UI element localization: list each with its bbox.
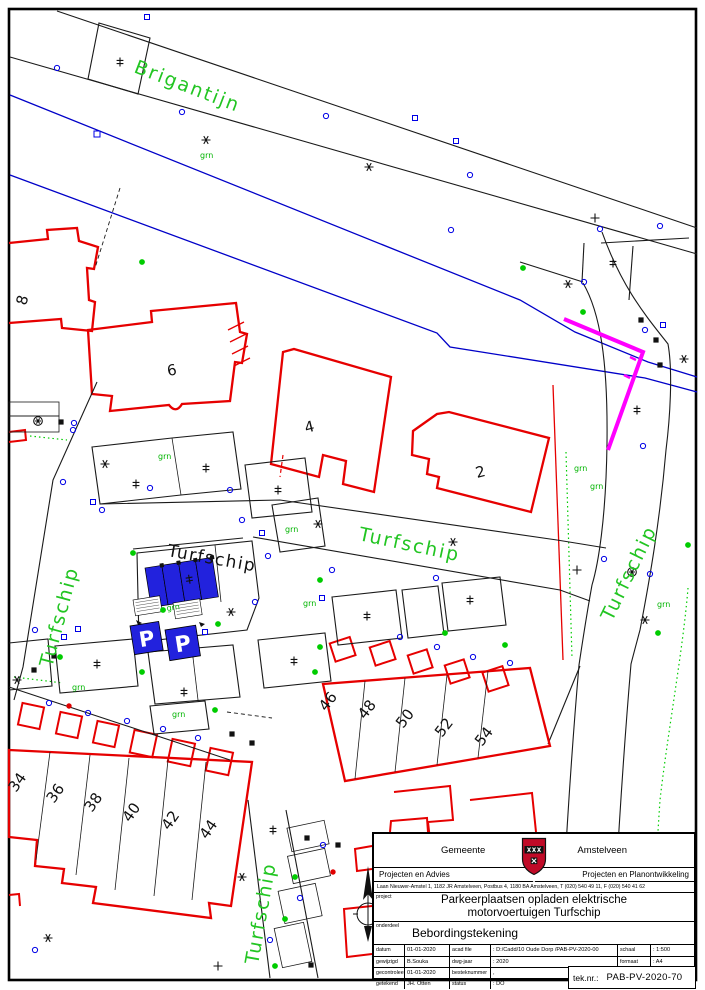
svg-text:grn: grn xyxy=(200,151,213,160)
drawing-page: P P xyxy=(0,0,705,990)
title-block-header: Gemeente Amstelveen xyxy=(374,834,694,867)
house-number: 54 xyxy=(471,723,497,749)
map-symbols xyxy=(13,15,691,971)
magenta-marking xyxy=(564,319,643,450)
dwgjaar-label: dwg-jaar xyxy=(449,956,490,967)
svg-text:grn: grn xyxy=(590,482,603,491)
house-number: 36 xyxy=(43,780,69,806)
project-title-line2: motorvoertuigen Turfschip xyxy=(374,907,694,920)
svg-text:grn: grn xyxy=(657,600,670,609)
svg-text:grn: grn xyxy=(285,525,298,534)
red-sheds-center xyxy=(330,637,509,692)
house-number: 52 xyxy=(431,714,457,740)
street-label-turfschip-bottom: Turfschip xyxy=(241,861,281,967)
amstelveen-coat-of-arms-icon xyxy=(521,837,547,885)
teknr-value: PAB-PV-2020-70 xyxy=(607,972,683,983)
gewijzigd-value: B.Souka xyxy=(404,956,449,967)
house-number: 38 xyxy=(81,789,107,815)
house-number: 2 xyxy=(474,462,488,482)
drawing-number-box: tek.nr.: PAB-PV-2020-70 xyxy=(568,966,696,989)
svg-text:grn: grn xyxy=(158,452,171,461)
title-block: Gemeente Amstelveen Projecten en Advies … xyxy=(372,832,696,981)
project-section: project Parkeerplaatsen opladen elektris… xyxy=(374,892,694,921)
top-streets xyxy=(10,11,697,300)
department-right: Projecten en Planontwikkeling xyxy=(582,870,689,879)
acadfile-label: acad file xyxy=(449,945,490,956)
house-number: 42 xyxy=(158,807,184,833)
title-block-grid: datum 01-01-2020 acad file : D:/Cadd/10 … xyxy=(374,944,694,989)
teknr-label: tek.nr.: xyxy=(573,973,599,983)
department-left: Projecten en Advies xyxy=(379,870,450,879)
status-label: status xyxy=(449,978,490,989)
getekend-value: JH. Otten xyxy=(404,978,449,989)
house-number: 6 xyxy=(166,361,179,380)
house-number: 48 xyxy=(354,696,380,722)
svg-text:grn: grn xyxy=(574,464,587,473)
schaal-label: schaal xyxy=(617,945,650,956)
municipality-word: Gemeente xyxy=(441,845,485,856)
svg-text:grn: grn xyxy=(172,710,185,719)
parking-sign-p1: P xyxy=(130,621,163,654)
svg-text:grn: grn xyxy=(303,599,316,608)
datum-value: 01-01-2020 xyxy=(404,945,449,956)
house-number: 4 xyxy=(303,417,317,437)
house-number: 46 xyxy=(315,688,341,714)
house-number: 50 xyxy=(392,705,418,731)
municipality-name: Amstelveen xyxy=(577,845,627,856)
gecontroleerd-value: 01-01-2020 xyxy=(404,967,449,978)
acadfile-value: : D:/Cadd/10 Oude Dorp /PAB-PV-2020-00 xyxy=(490,945,617,956)
water-lines xyxy=(10,95,697,392)
besteknummer-label: besteknummer xyxy=(449,967,490,978)
house-number: 8 xyxy=(12,293,32,307)
parking-sign-p2: P xyxy=(165,625,200,660)
project-label: project xyxy=(376,894,392,900)
getekend-label: getekend xyxy=(374,978,404,989)
onderdeel-value: Bebordingstekening xyxy=(412,926,518,940)
onderdeel-section: onderdeel Bebordingstekening xyxy=(374,921,694,944)
svg-text:grn: grn xyxy=(72,683,85,692)
gewijzigd-label: gewijzigd xyxy=(374,956,404,967)
schaal-value: : 1:500 xyxy=(650,945,694,956)
street-label-turfschip-right: Turfschip xyxy=(596,522,661,625)
street-label-turfschip-left: Turfschip xyxy=(35,564,83,670)
gecontroleerd-label: gecontroleerd xyxy=(374,967,404,978)
onderdeel-label: onderdeel xyxy=(376,923,399,929)
street-label-turfschip-green: Turfschip xyxy=(356,523,462,566)
house-number: 44 xyxy=(196,816,222,842)
project-title-line1: Parkeerplaatsen opladen elektrische xyxy=(374,894,694,907)
datum-label: datum xyxy=(374,945,404,956)
